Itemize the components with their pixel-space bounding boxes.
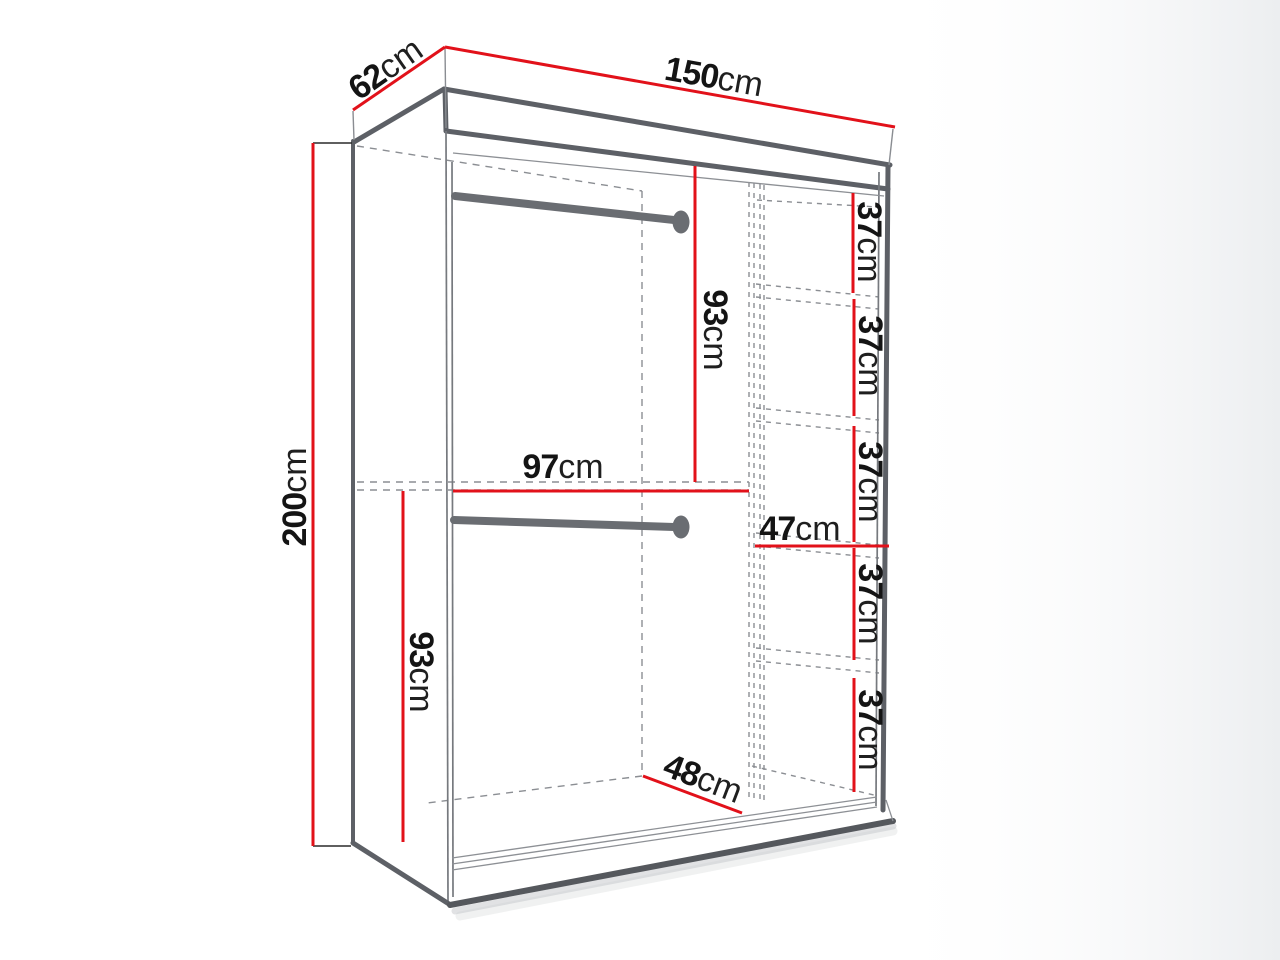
upper-section-dimension-label: 93cm bbox=[696, 289, 734, 370]
front-bottom-edge bbox=[450, 821, 893, 905]
divider-panel-hidden-lines bbox=[749, 182, 764, 800]
top-front-upper-edge bbox=[444, 89, 890, 165]
hanging-rail-upper bbox=[455, 196, 674, 220]
hanging-width-dimension-label: 97cm bbox=[522, 448, 603, 486]
background-shading bbox=[880, 0, 1280, 960]
side-bottom-edge bbox=[353, 843, 449, 904]
shelf-gap-label-3: 37cm bbox=[851, 441, 889, 522]
hanging-rail-lower bbox=[454, 520, 674, 527]
shelf-gap-label-2: 37cm bbox=[851, 315, 889, 396]
shelf-gap-label-1: 37cm bbox=[850, 201, 888, 282]
shelf-gap-label-5: 37cm bbox=[851, 689, 889, 770]
height-dimension-label: 200cm bbox=[276, 447, 314, 546]
diagram-canvas: 150cm 62cm 200cm 93cm 93cm 97cm 47cm 48c… bbox=[0, 0, 1280, 960]
floor-depth-dimension-label: 48cm bbox=[658, 746, 747, 811]
dimension-lines bbox=[313, 47, 895, 846]
shelf-width-dimension-label: 47cm bbox=[759, 510, 840, 548]
lower-section-dimension-label: 93cm bbox=[402, 631, 440, 712]
hanging-rails bbox=[454, 196, 690, 539]
rail-end-cap-lower bbox=[673, 516, 690, 539]
wardrobe-dimension-diagram: 150cm 62cm 200cm 93cm 93cm 97cm 47cm 48c… bbox=[0, 0, 1280, 960]
depth-dimension-label: 62cm bbox=[342, 30, 430, 108]
width-dimension-label: 150cm bbox=[662, 50, 766, 105]
rail-end-cap-upper bbox=[673, 211, 690, 234]
front-left-edge bbox=[446, 131, 448, 901]
top-front-lower-edge bbox=[446, 131, 888, 189]
shelf-gap-label-4: 37cm bbox=[851, 563, 889, 644]
